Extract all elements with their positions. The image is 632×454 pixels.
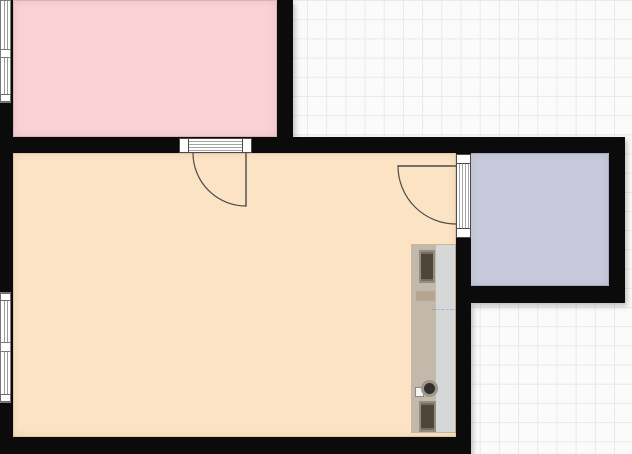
door-swing-arc (398, 166, 456, 224)
floorplan (0, 0, 632, 454)
door-swing-overlay (0, 0, 632, 454)
door-swing-arc (193, 153, 246, 206)
floorplan-grid-canvas (0, 0, 632, 454)
